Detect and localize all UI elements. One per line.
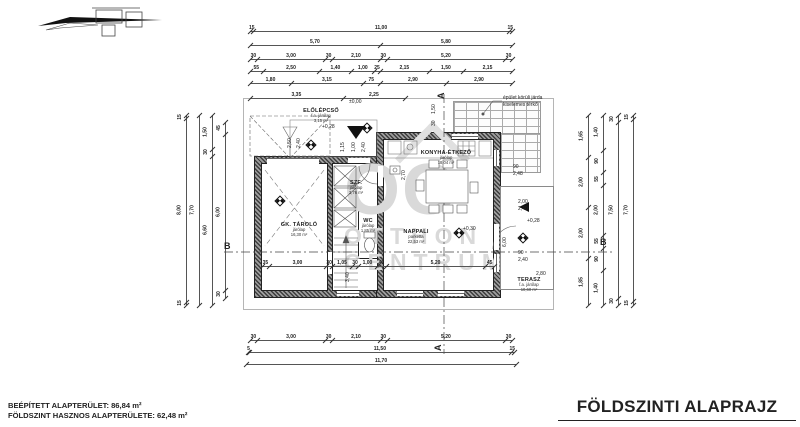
dim-label: 15 bbox=[178, 114, 183, 120]
dim-label: 3,00 bbox=[286, 335, 296, 340]
annotation: 1,15 bbox=[341, 142, 346, 152]
dim-label: 2,15 bbox=[483, 66, 493, 71]
annotation: B bbox=[600, 238, 607, 247]
dim-label: 45 bbox=[379, 261, 385, 266]
dim-label: 45 bbox=[217, 125, 222, 131]
garage-door-opening bbox=[267, 158, 319, 164]
dim-label: 6,00 bbox=[217, 207, 222, 217]
annotation: +0,30 bbox=[463, 227, 476, 232]
drawing-title: FÖLDSZINTI ALAPRAJZ bbox=[558, 397, 796, 421]
annotation: A bbox=[437, 93, 446, 100]
annotation: 3,40 bbox=[346, 272, 351, 282]
dimension-chain: 1,652,002,001,85 bbox=[583, 115, 593, 305]
dim-label: 15 bbox=[178, 301, 183, 307]
dimension-chain: 1,803,15752,902,90 bbox=[250, 76, 512, 86]
dim-label: 30 bbox=[217, 291, 222, 297]
annotation: 30 bbox=[432, 120, 437, 126]
dimension-chain: 5,705,80 bbox=[250, 38, 512, 48]
room-label-terasz: TERASZf.a. járólap10,60 m² bbox=[517, 277, 540, 293]
annotation: épület körüli járda bbox=[503, 96, 542, 101]
dim-label: 35 bbox=[263, 261, 269, 266]
annotation: 2,70 bbox=[402, 170, 407, 180]
dim-label: 2,00 bbox=[580, 177, 585, 187]
built-area-line: BEÉPÍTETT ALAPTERÜLET: 86,84 m² bbox=[8, 401, 187, 412]
net-area-line: FÖLDSZINT HASZNOS ALAPTERÜLETE: 62,48 m² bbox=[8, 411, 187, 422]
dim-label: 2,15 bbox=[399, 66, 409, 71]
annotation: 6,00 bbox=[503, 237, 508, 247]
dim-label: 3,00 bbox=[293, 261, 303, 266]
dim-label: 30 bbox=[610, 299, 615, 305]
dimension-chain: 3,352,25 bbox=[250, 91, 405, 101]
annotation: 90 bbox=[513, 165, 519, 170]
dimension-chain: 307,5030 bbox=[613, 115, 623, 305]
annotation: 2,00 bbox=[518, 200, 528, 205]
dim-label: 11,50 bbox=[374, 347, 386, 352]
dim-label: 1,40 bbox=[595, 283, 600, 293]
room-label-el-l-pcs-: ELŐLÉPCSŐf.a. járólap3,15 m² bbox=[303, 108, 339, 124]
annotation: ±0,00 bbox=[349, 100, 361, 105]
dim-label: 1,80 bbox=[266, 78, 276, 83]
annotation: 2,50 bbox=[288, 138, 293, 148]
south-window-hall bbox=[337, 291, 359, 296]
dim-label: 1,50 bbox=[204, 127, 209, 137]
dim-label: 15 bbox=[625, 114, 630, 120]
dimension-chain: 511,5015 bbox=[248, 345, 514, 355]
kitchen-window bbox=[452, 134, 478, 139]
area-summary: BEÉPÍTETT ALAPTERÜLET: 86,84 m² FÖLDSZIN… bbox=[8, 401, 187, 422]
annotation: +0,28 bbox=[322, 125, 335, 130]
dim-label: 3,00 bbox=[286, 54, 296, 59]
dim-label: 25 bbox=[374, 66, 380, 71]
dim-label: 30 bbox=[204, 150, 209, 156]
annotation: 2,40 bbox=[518, 258, 528, 263]
dim-label: 7,50 bbox=[610, 205, 615, 215]
room-area: 18,04 m² bbox=[421, 161, 472, 166]
dim-label: 2,10 bbox=[351, 54, 361, 59]
annotation: 1,50 bbox=[432, 104, 437, 114]
dim-label: 2,90 bbox=[474, 78, 484, 83]
dim-label: 11,00 bbox=[375, 26, 387, 31]
annotation: 2,48 bbox=[513, 172, 523, 177]
dim-label: 30 bbox=[251, 335, 257, 340]
dim-label: 7,70 bbox=[191, 205, 196, 215]
dim-label: 30 bbox=[380, 335, 386, 340]
room-label-wc: WCjárólap1,85 m² bbox=[361, 218, 375, 234]
room-label-nappali: NAPPALIparketta22,53 m² bbox=[403, 229, 428, 245]
dim-label: 3,15 bbox=[322, 78, 332, 83]
dim-label: 5,70 bbox=[310, 40, 320, 45]
entrance-door-opening bbox=[348, 158, 370, 163]
dim-label: 1,50 bbox=[441, 66, 451, 71]
dim-label: 2,50 bbox=[286, 66, 296, 71]
dim-label: 5,20 bbox=[441, 54, 451, 59]
east-window-1 bbox=[494, 150, 499, 166]
dim-label: 30 bbox=[251, 54, 257, 59]
room-area: 3,76 m² bbox=[349, 191, 363, 196]
annotation: 2,80 bbox=[536, 272, 546, 277]
dim-label: 1,40 bbox=[331, 66, 341, 71]
dimension-chain: 157,7015 bbox=[628, 115, 638, 305]
dim-label: 2,00 bbox=[595, 205, 600, 215]
room-area: 1,85 m² bbox=[361, 229, 375, 234]
room-area: 10,60 m² bbox=[517, 288, 540, 293]
room-label-gk-t-rol-: GK. TÁROLÓjárólap16,30 m² bbox=[281, 222, 318, 238]
south-window-2 bbox=[438, 291, 464, 296]
dim-label: 45 bbox=[487, 261, 493, 266]
dimension-chain: 353,00301,05301,00455,2045 bbox=[262, 259, 494, 269]
dim-label: 2,10 bbox=[351, 335, 361, 340]
dim-label: 30 bbox=[326, 261, 332, 266]
dim-label: 1,00 bbox=[363, 261, 373, 266]
floor-plan-sheet: OC OTTHON CENTRUM bbox=[0, 0, 800, 427]
dim-label: 90 bbox=[595, 257, 600, 263]
dim-label: 2,00 bbox=[580, 228, 585, 238]
dim-label: 11,70 bbox=[375, 359, 387, 364]
dim-label: 1,40 bbox=[595, 127, 600, 137]
dim-label: 2,90 bbox=[408, 78, 418, 83]
dim-label: 30 bbox=[610, 116, 615, 122]
room-area: 16,30 m² bbox=[281, 233, 318, 238]
dim-label: 30 bbox=[380, 54, 386, 59]
terrace-door-opening bbox=[494, 224, 499, 250]
dim-label: 30 bbox=[352, 261, 358, 266]
annotation: 2,40 bbox=[362, 142, 367, 152]
dim-label: 75 bbox=[369, 78, 375, 83]
szf-kitchen-door-opening bbox=[378, 166, 383, 186]
dimension-chain: 11,70 bbox=[246, 357, 516, 367]
dim-label: 5,20 bbox=[441, 335, 451, 340]
dimension-chain: 552,501,401,00252,151,502,15 bbox=[250, 64, 512, 74]
dimension-chain: 303,00302,10305,2030 bbox=[250, 333, 512, 343]
dim-label: 5,80 bbox=[441, 40, 451, 45]
room-area: 22,53 m² bbox=[403, 240, 428, 245]
dimension-chain: 7,70 bbox=[194, 115, 204, 305]
dim-label: 3,35 bbox=[291, 93, 301, 98]
dimension-chain: 1511,0015 bbox=[250, 24, 512, 34]
annotation: A bbox=[434, 345, 443, 352]
company-logo-sketch bbox=[36, 4, 166, 40]
annotation: +0,28 bbox=[527, 219, 540, 224]
dim-label: 2,25 bbox=[369, 93, 379, 98]
dim-label: 55 bbox=[253, 66, 259, 71]
dim-label: 30 bbox=[506, 54, 512, 59]
dim-label: 7,70 bbox=[625, 205, 630, 215]
dimension-chain: 456,0030 bbox=[220, 122, 230, 298]
dim-label: 1,65 bbox=[580, 131, 585, 141]
south-window-1 bbox=[397, 291, 423, 296]
dim-label: 5,20 bbox=[431, 261, 441, 266]
annotation: 1,00 bbox=[352, 142, 357, 152]
annotation: 90 bbox=[518, 251, 524, 256]
dim-label: 1,85 bbox=[580, 277, 585, 287]
dim-label: 90 bbox=[595, 158, 600, 164]
dim-label: 1,00 bbox=[358, 66, 368, 71]
paved-walkway-side bbox=[500, 133, 541, 173]
annotation: 2,40 bbox=[297, 138, 302, 148]
dim-label: 8,00 bbox=[178, 205, 183, 215]
room-label-konyha-tkez-: KONYHA-ÉTKEZŐjárólap18,04 m² bbox=[421, 150, 472, 166]
dim-label: 30 bbox=[506, 335, 512, 340]
dim-label: 15 bbox=[625, 300, 630, 306]
dimension-chain: 303,00302,10305,2030 bbox=[250, 52, 512, 62]
dimension-chain: 1,4090552,0055901,40 bbox=[598, 115, 608, 305]
annotation: 2,40 bbox=[518, 207, 528, 212]
dim-label: 55 bbox=[595, 176, 600, 182]
annotation: kiselemes térkő bbox=[503, 103, 538, 108]
dim-label: 1,05 bbox=[337, 261, 347, 266]
dim-label: 30 bbox=[326, 335, 332, 340]
room-label-szf-: SZF.járólap3,76 m² bbox=[349, 180, 363, 196]
annotation: B bbox=[224, 242, 231, 251]
dim-label: 6,60 bbox=[204, 225, 209, 235]
dim-label: 30 bbox=[326, 54, 332, 59]
